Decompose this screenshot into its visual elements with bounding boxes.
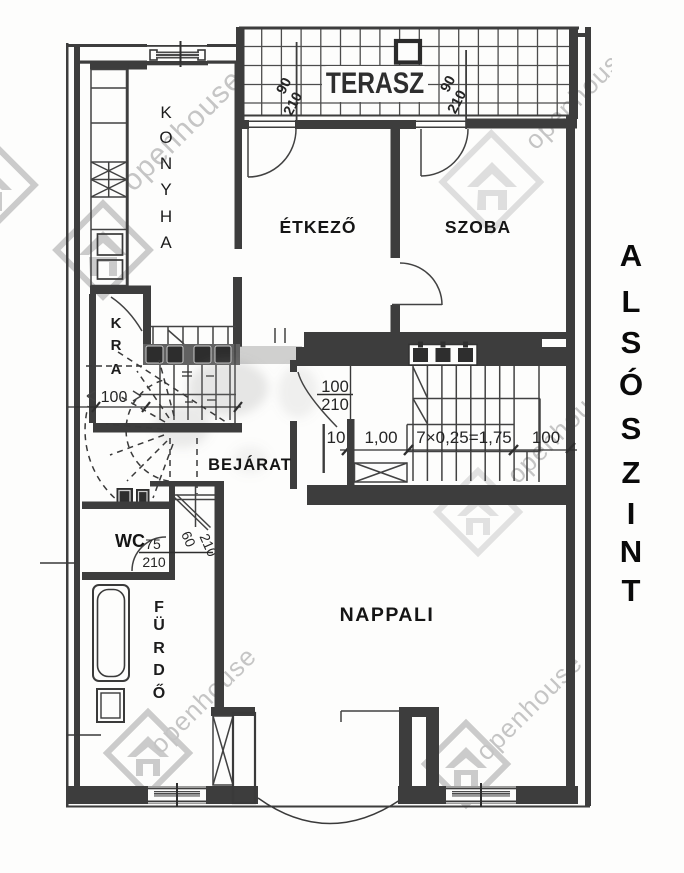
svg-text:10: 10: [327, 428, 346, 447]
svg-text:100: 100: [532, 428, 560, 447]
svg-text:N: N: [160, 154, 172, 173]
svg-text:D: D: [153, 662, 165, 679]
svg-text:210: 210: [142, 554, 166, 570]
svg-text:75: 75: [145, 536, 161, 552]
svg-text:A: A: [111, 361, 122, 378]
svg-text:1,00: 1,00: [364, 428, 397, 447]
svg-text:F: F: [154, 599, 164, 616]
svg-text:Y: Y: [160, 180, 171, 199]
svg-text:N: N: [620, 534, 642, 569]
svg-text:Ü: Ü: [153, 615, 165, 634]
svg-text:Z: Z: [622, 455, 641, 490]
svg-text:Ó: Ó: [619, 366, 643, 402]
svg-text:O: O: [159, 128, 172, 147]
svg-text:BEJÁRAT: BEJÁRAT: [208, 455, 292, 474]
svg-text:SZOBA: SZOBA: [445, 217, 511, 237]
svg-text:S: S: [621, 325, 642, 360]
svg-text:K: K: [160, 103, 172, 122]
svg-text:210: 210: [321, 396, 349, 414]
svg-text:R: R: [153, 640, 165, 657]
svg-text:T: T: [622, 573, 641, 608]
svg-text:L: L: [622, 284, 641, 319]
svg-text:A: A: [160, 233, 172, 252]
svg-text:H: H: [160, 207, 172, 226]
svg-text:R: R: [111, 337, 122, 354]
svg-text:7×0,25=1,75: 7×0,25=1,75: [416, 428, 511, 447]
svg-text:S: S: [621, 411, 642, 446]
svg-text:TERASZ: TERASZ: [326, 66, 424, 100]
svg-text:100: 100: [321, 378, 349, 396]
svg-text:ÉTKEZŐ: ÉTKEZŐ: [280, 216, 357, 237]
svg-text:A: A: [620, 238, 642, 273]
svg-text:Ő: Ő: [153, 683, 165, 702]
svg-text:K: K: [111, 315, 122, 332]
svg-text:I: I: [627, 496, 636, 531]
svg-text:NAPPALI: NAPPALI: [340, 604, 435, 626]
